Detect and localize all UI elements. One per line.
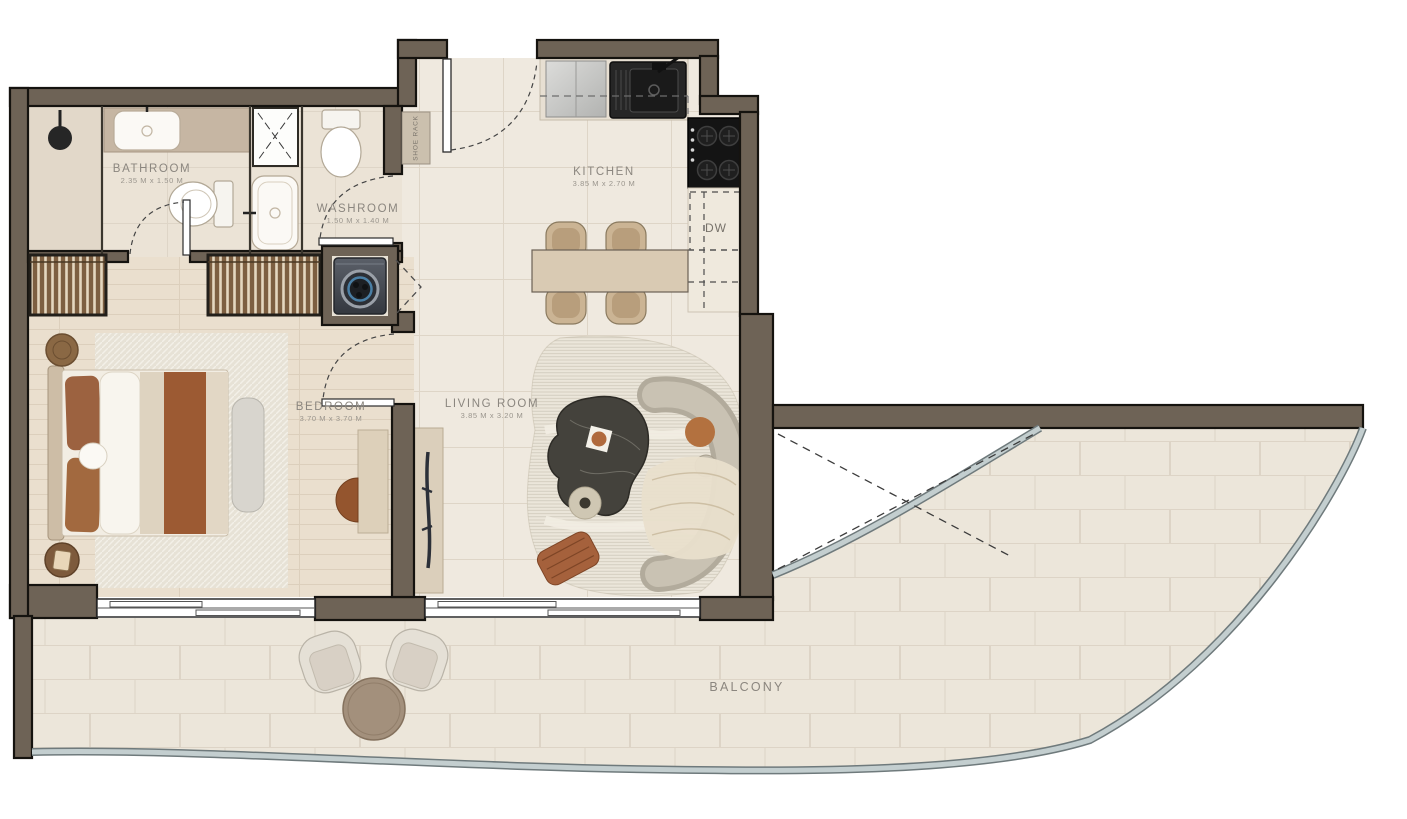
sofa-cushion-orange	[685, 417, 715, 447]
washroom-toilet	[321, 110, 361, 177]
floor-plan: BATHROOM 2.35 M x 1.50 M WASHROOM 1.50 M…	[0, 0, 1407, 819]
stove	[688, 118, 742, 188]
desk	[358, 430, 388, 533]
wardrobe-right	[208, 255, 320, 315]
bed	[48, 366, 228, 540]
balcony-table	[343, 678, 405, 740]
dishwasher-label: DW	[705, 221, 727, 235]
bed-bench	[232, 398, 264, 512]
floor-plan-svg	[0, 0, 1407, 819]
shoe-rack-label: SHOE RACK	[413, 115, 420, 161]
living-window	[425, 599, 700, 617]
bedroom-window	[97, 599, 315, 617]
wardrobe-left	[30, 255, 106, 315]
dining-table	[532, 250, 688, 292]
shower-stall	[253, 108, 298, 166]
side-table-top	[46, 334, 78, 366]
tv-console	[414, 428, 443, 593]
washing-machine	[334, 258, 386, 314]
kitchen-sink	[610, 52, 686, 118]
bathroom-toilet	[169, 181, 233, 227]
